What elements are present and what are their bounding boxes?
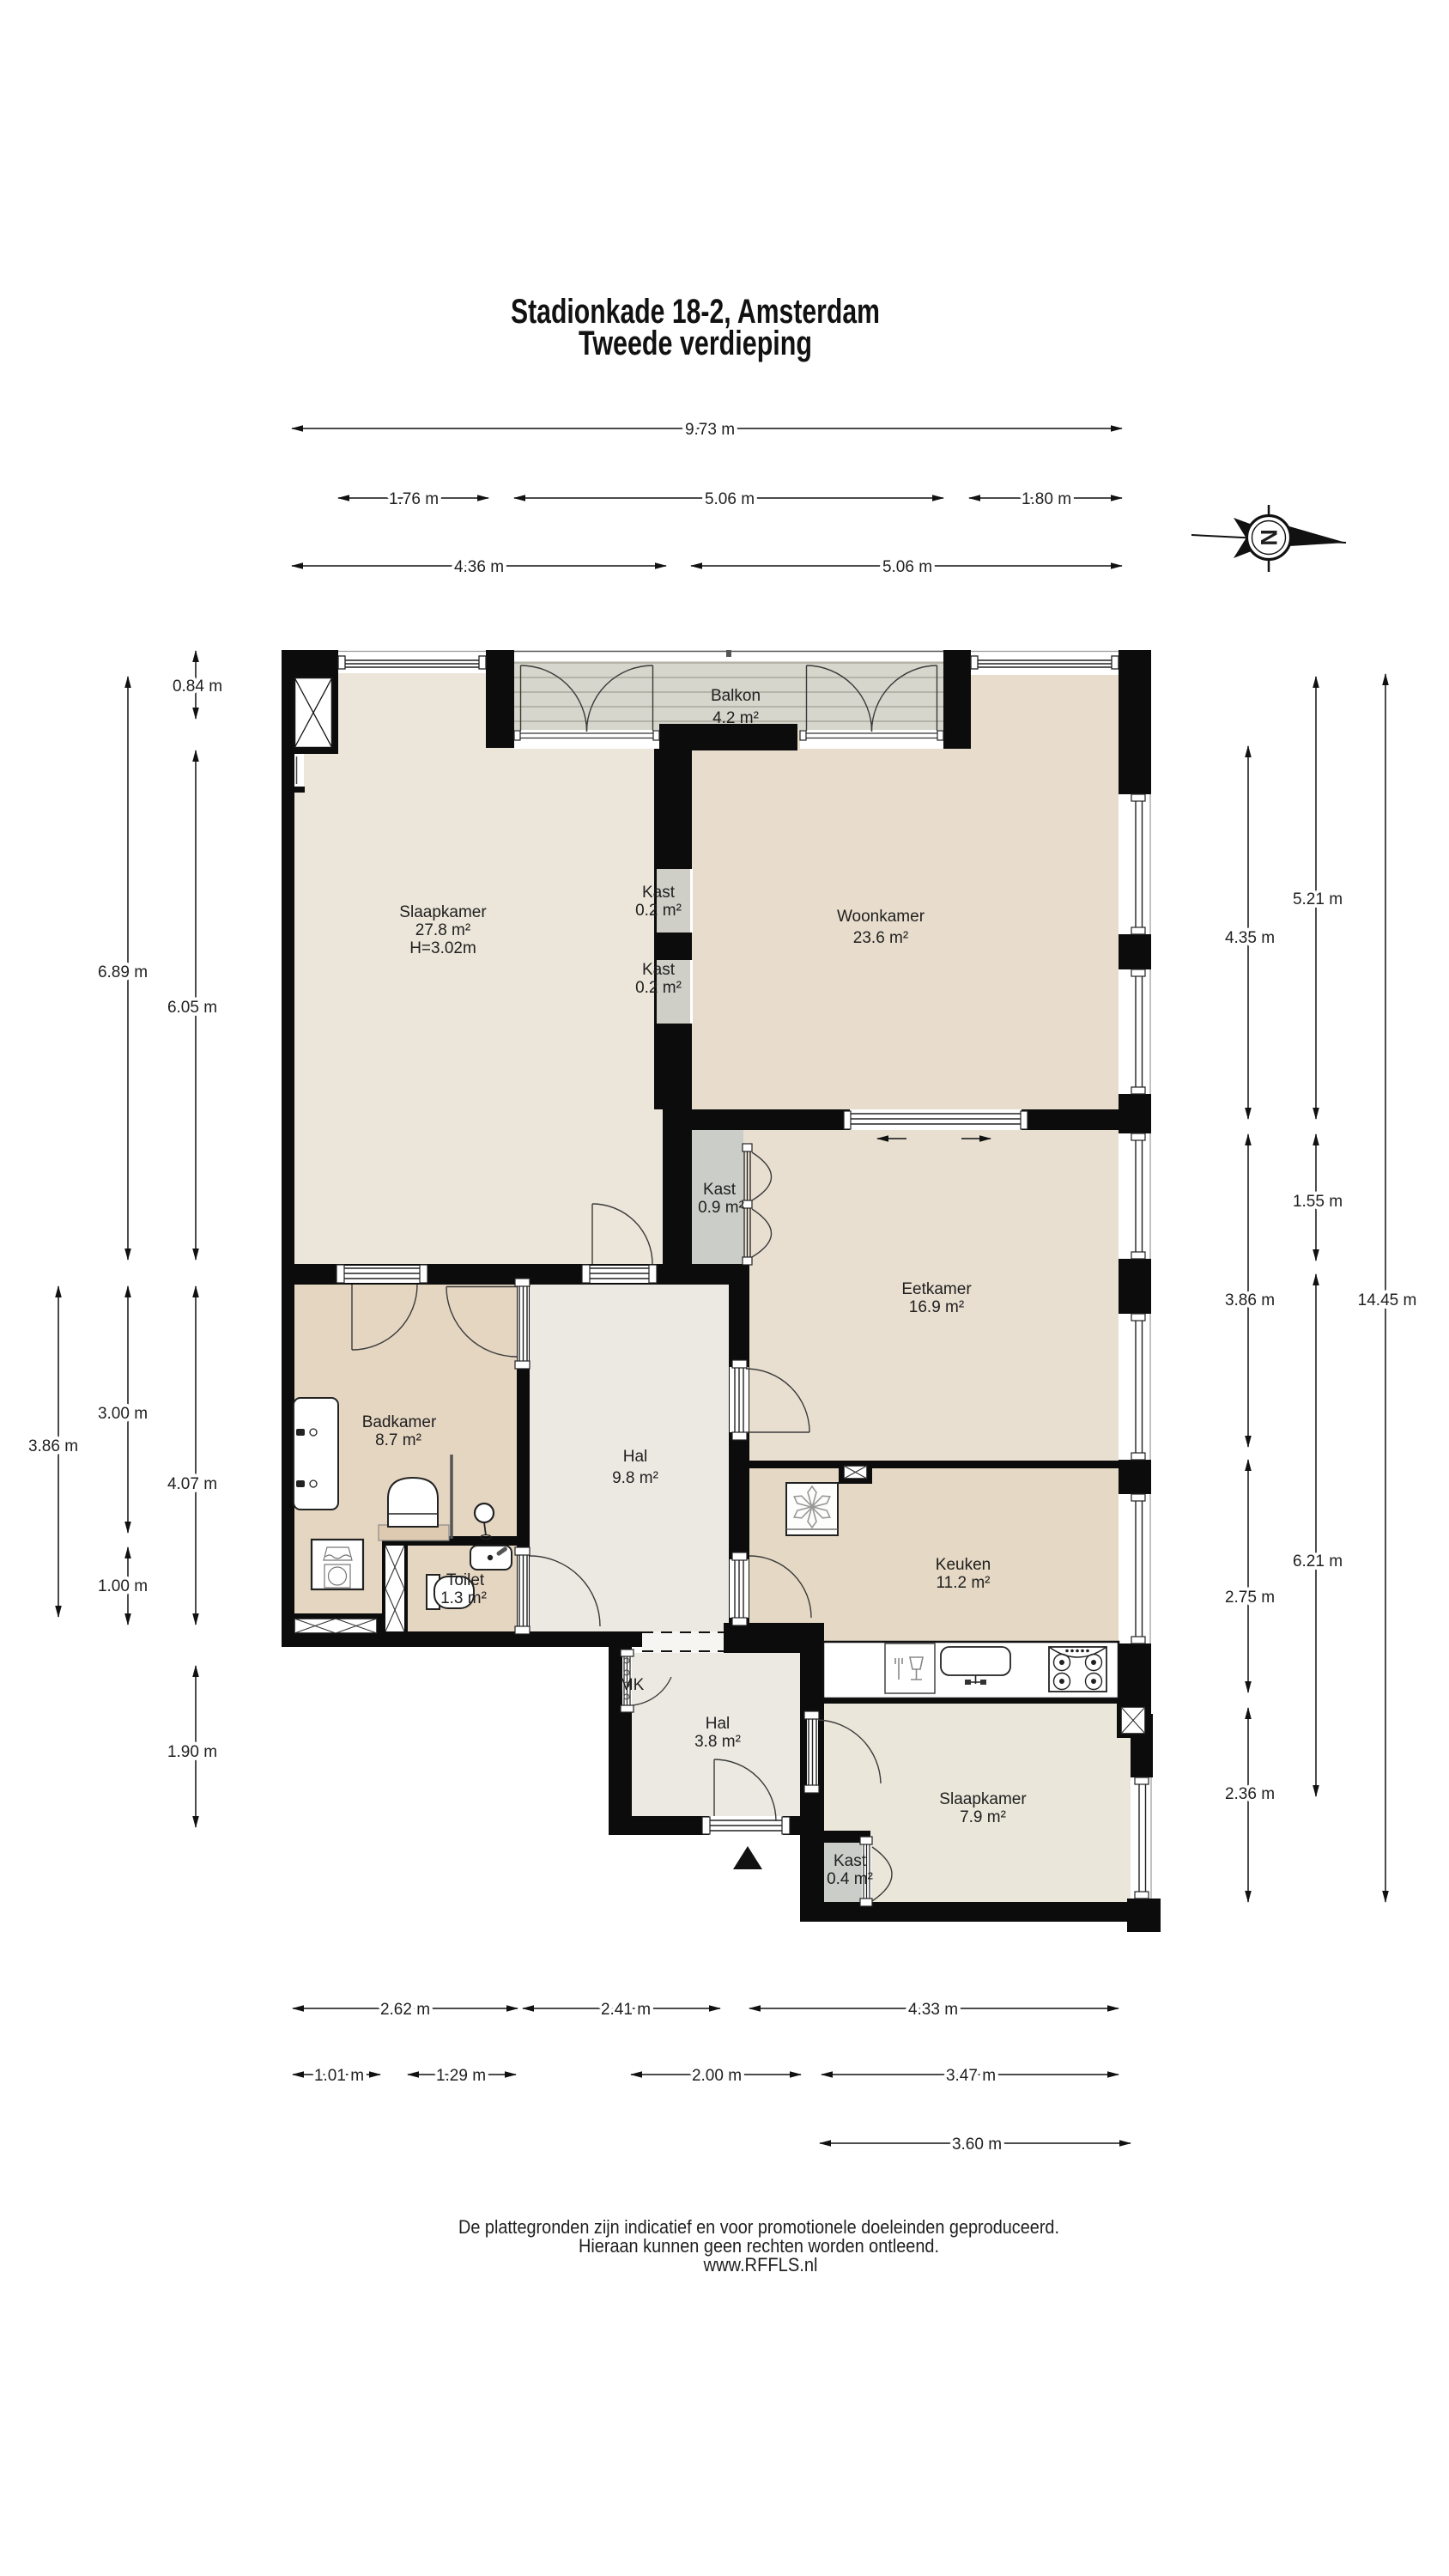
svg-text:Woonkamer: Woonkamer [837, 908, 925, 926]
svg-text:5.06 m: 5.06 m [882, 558, 932, 576]
svg-text:Kast: Kast [642, 961, 676, 979]
svg-text:Kast: Kast [642, 884, 676, 902]
svg-text:www.RFFLS.nl: www.RFFLS.nl [703, 2254, 818, 2275]
svg-text:3.86 m: 3.86 m [28, 1437, 78, 1455]
svg-text:23.6 m²: 23.6 m² [853, 929, 908, 947]
svg-text:Balkon: Balkon [711, 687, 761, 705]
svg-text:Slaapkamer: Slaapkamer [939, 1790, 1027, 1808]
svg-text:14.45 m: 14.45 m [1358, 1291, 1417, 1309]
svg-text:4.35 m: 4.35 m [1225, 929, 1275, 947]
svg-text:7.9 m²: 7.9 m² [960, 1808, 1006, 1826]
svg-text:0.9 m²: 0.9 m² [698, 1199, 744, 1217]
svg-text:1.3 m²: 1.3 m² [440, 1589, 487, 1607]
svg-text:1.90 m: 1.90 m [167, 1743, 217, 1761]
svg-text:3.00 m: 3.00 m [98, 1405, 148, 1423]
svg-text:6.89 m: 6.89 m [98, 963, 148, 981]
svg-text:Tweede verdieping: Tweede verdieping [579, 325, 812, 362]
svg-text:0.2 m²: 0.2 m² [635, 979, 682, 997]
svg-text:4.07 m: 4.07 m [167, 1475, 217, 1493]
svg-text:9.8 m²: 9.8 m² [612, 1469, 658, 1487]
svg-text:3.47 m: 3.47 m [946, 2067, 996, 2085]
svg-text:9.73 m: 9.73 m [685, 421, 735, 439]
svg-text:0.84 m: 0.84 m [173, 677, 222, 696]
svg-text:3.8 m²: 3.8 m² [694, 1733, 741, 1751]
svg-text:5.21 m: 5.21 m [1293, 890, 1343, 908]
svg-text:3.60 m: 3.60 m [952, 2136, 1002, 2154]
svg-text:Keuken: Keuken [936, 1556, 991, 1574]
svg-text:N: N [1256, 529, 1282, 546]
svg-text:3.86 m: 3.86 m [1225, 1291, 1275, 1309]
svg-text:Toilet: Toilet [446, 1571, 485, 1589]
svg-text:6.21 m: 6.21 m [1293, 1552, 1343, 1571]
svg-text:4.33 m: 4.33 m [908, 2001, 958, 2019]
svg-text:16.9 m²: 16.9 m² [909, 1298, 964, 1316]
svg-text:0.2 m²: 0.2 m² [635, 902, 682, 920]
svg-text:Kast: Kast [703, 1181, 737, 1199]
svg-text:1.29 m: 1.29 m [436, 2067, 486, 2085]
svg-text:Kast: Kast [834, 1852, 867, 1870]
svg-text:2.75 m: 2.75 m [1225, 1589, 1275, 1607]
svg-text:1.00 m: 1.00 m [98, 1577, 148, 1595]
svg-text:Hal: Hal [623, 1448, 648, 1466]
svg-text:5.06 m: 5.06 m [705, 490, 755, 508]
svg-text:Badkamer: Badkamer [362, 1413, 437, 1431]
svg-text:6.05 m: 6.05 m [167, 999, 217, 1017]
svg-text:11.2 m²: 11.2 m² [936, 1574, 990, 1592]
svg-text:H=3.02m: H=3.02m [409, 939, 476, 957]
svg-text:1.80 m: 1.80 m [1022, 490, 1071, 508]
svg-text:Eetkamer: Eetkamer [901, 1280, 972, 1298]
svg-text:MK: MK [620, 1676, 645, 1694]
svg-text:8.7 m²: 8.7 m² [375, 1431, 421, 1449]
svg-text:2.00 m: 2.00 m [692, 2067, 742, 2085]
svg-text:27.8 m²: 27.8 m² [415, 921, 470, 939]
svg-text:2.41 m: 2.41 m [601, 2001, 651, 2019]
svg-text:1.76 m: 1.76 m [389, 490, 439, 508]
svg-text:1.55 m: 1.55 m [1293, 1193, 1343, 1211]
svg-text:2.36 m: 2.36 m [1225, 1785, 1275, 1803]
svg-text:4.36 m: 4.36 m [454, 558, 504, 576]
svg-text:4.2 m²: 4.2 m² [712, 709, 759, 727]
svg-text:2.62 m: 2.62 m [380, 2001, 430, 2019]
svg-text:1.01 m: 1.01 m [314, 2067, 364, 2085]
svg-text:0.4 m²: 0.4 m² [827, 1870, 873, 1888]
svg-text:Slaapkamer: Slaapkamer [399, 903, 487, 921]
svg-text:Hal: Hal [706, 1715, 731, 1733]
